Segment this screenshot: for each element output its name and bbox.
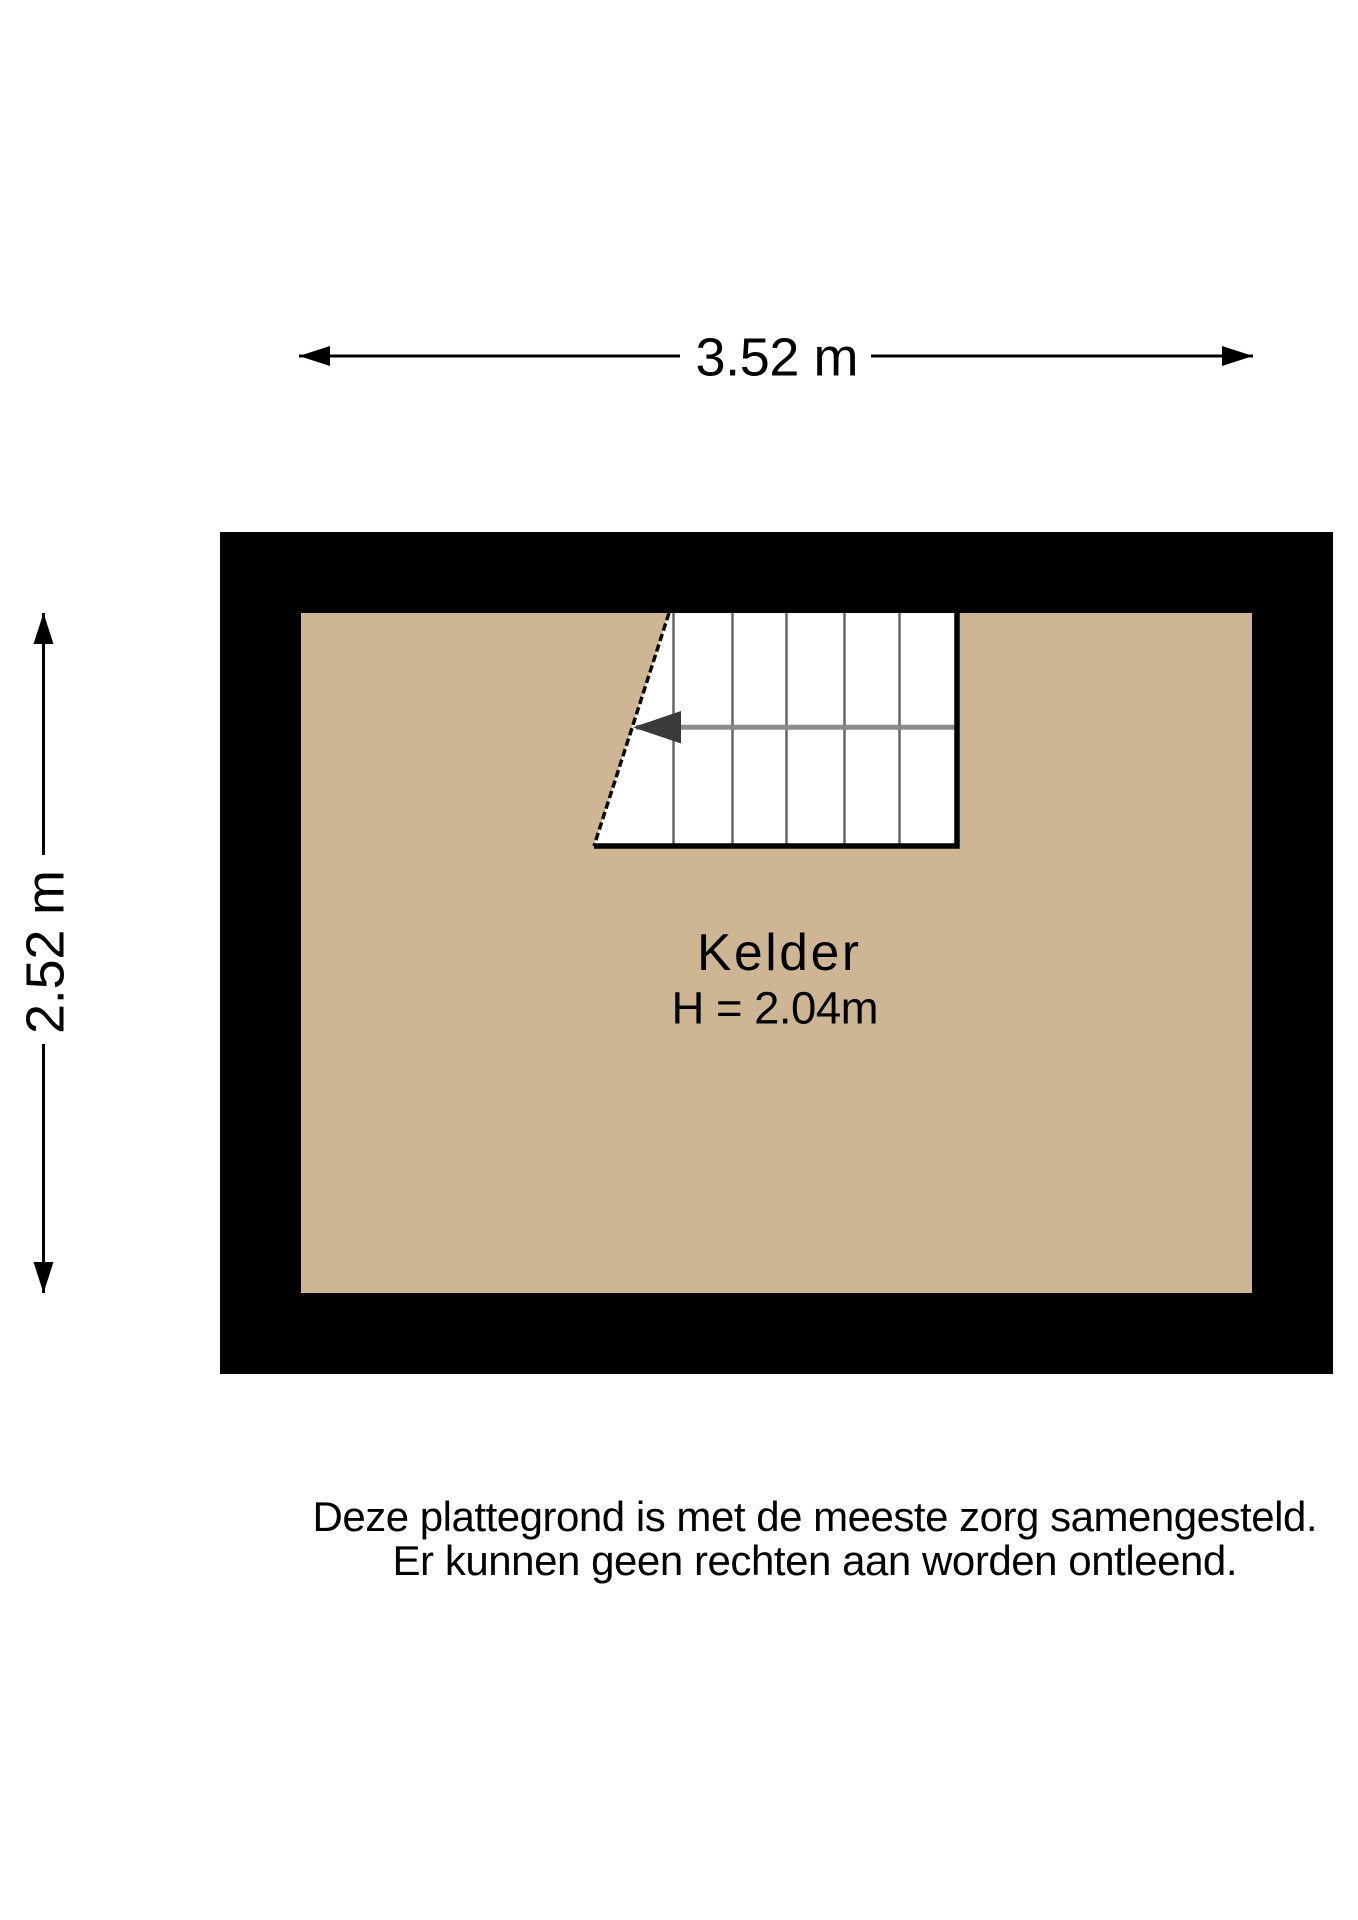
svg-text:2.52 m: 2.52 m [16,870,76,1034]
svg-text:H = 2.04m: H = 2.04m [672,983,879,1034]
svg-text:Er kunnen geen rechten aan wor: Er kunnen geen rechten aan worden ontlee… [393,1537,1238,1584]
svg-text:3.52 m: 3.52 m [696,328,859,388]
svg-text:Deze plattegrond is met de mee: Deze plattegrond is met de meeste zorg s… [313,1493,1318,1540]
